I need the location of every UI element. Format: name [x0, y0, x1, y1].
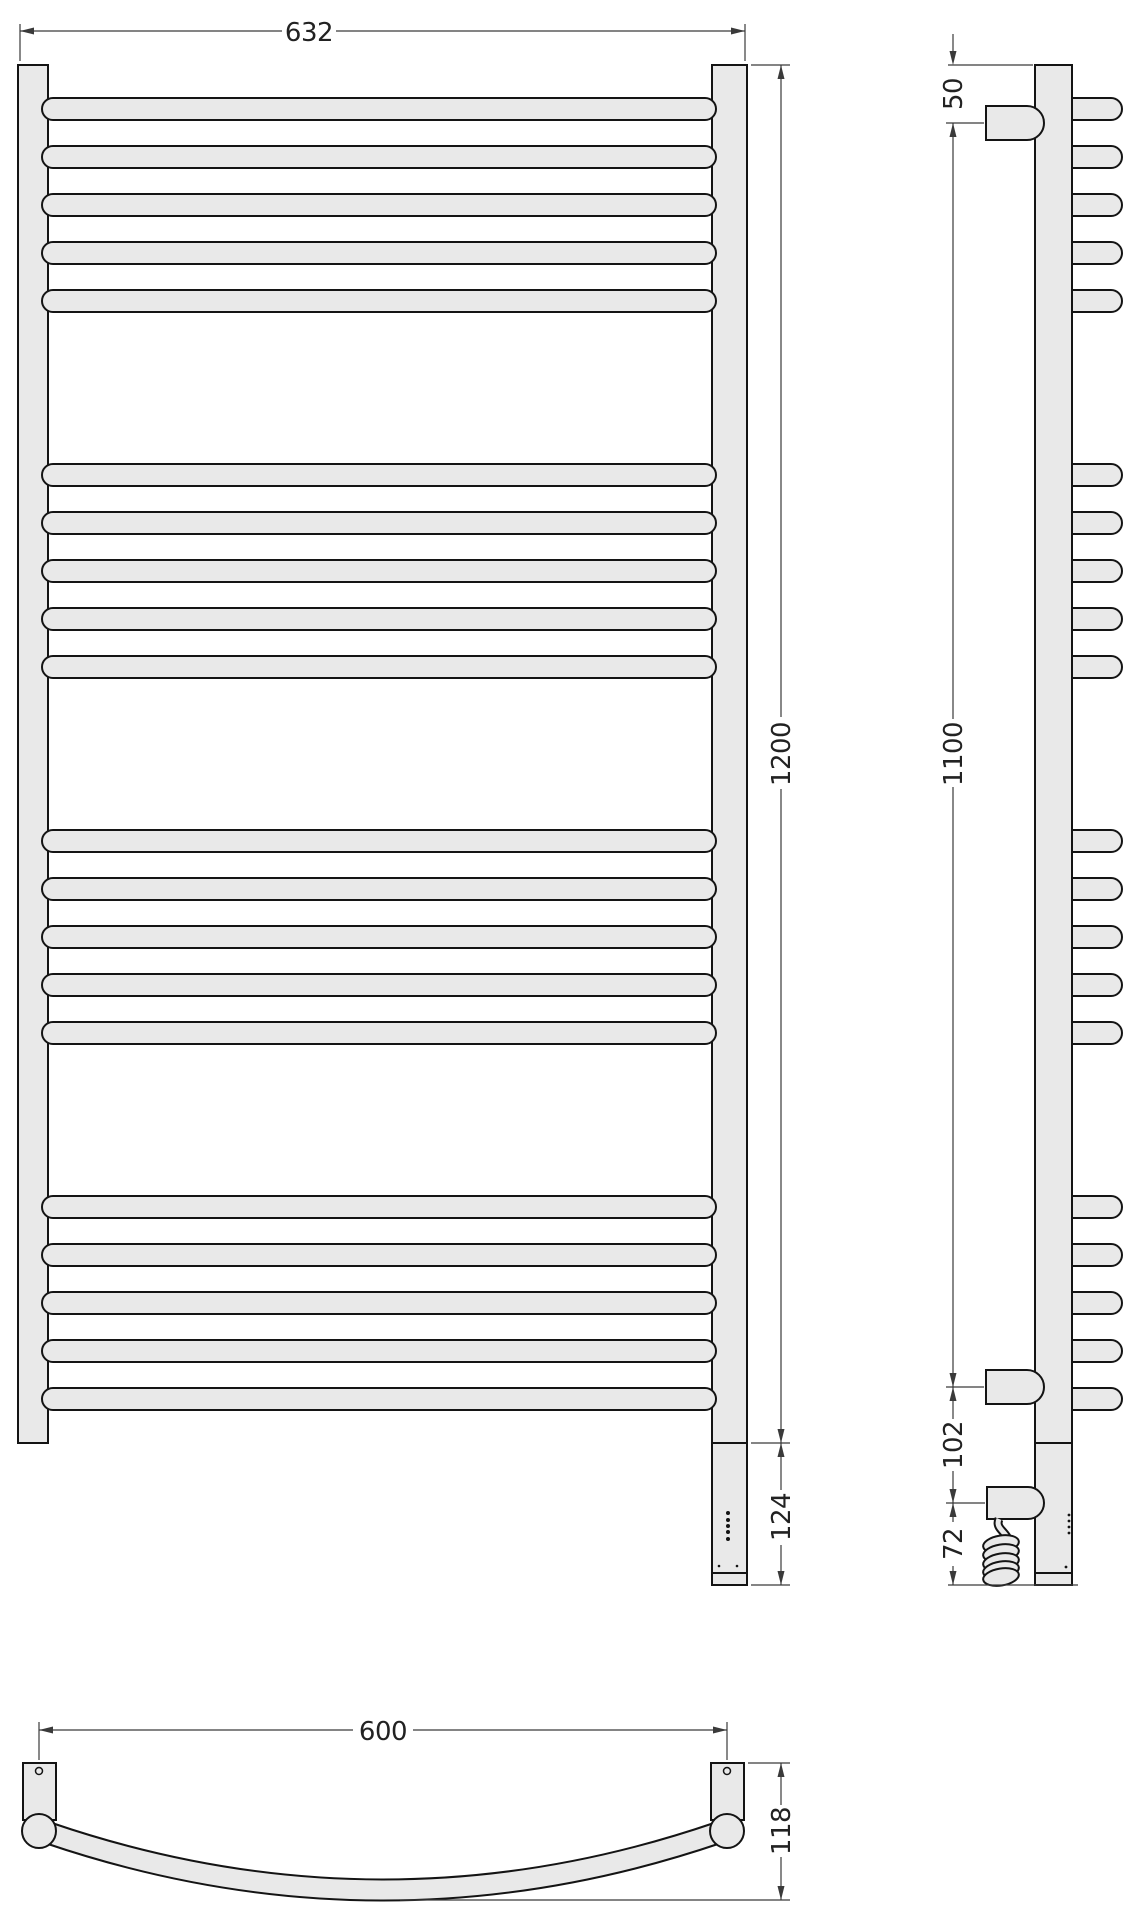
towel-bar	[42, 464, 716, 486]
dim-label-50: 50	[939, 78, 969, 110]
dim-label-1100: 1100	[939, 722, 969, 786]
towel-rail-technical-drawing: 632 1200 124 50	[0, 0, 1142, 1920]
right-post	[710, 1814, 744, 1848]
dim-label-72: 72	[939, 1528, 969, 1560]
towel-bar	[42, 1196, 716, 1218]
towel-bar	[42, 608, 716, 630]
towel-bar	[42, 146, 716, 168]
dim-front-width: 632	[20, 18, 745, 61]
dim-label-1200: 1200	[767, 722, 797, 786]
towel-bar	[42, 1388, 716, 1410]
towel-bar	[42, 1244, 716, 1266]
side-rail	[1035, 65, 1072, 1443]
left-post	[22, 1814, 56, 1848]
dim-label-102: 102	[939, 1421, 969, 1469]
towel-bar	[42, 1340, 716, 1362]
dim-bottom-mount-span: 600	[39, 1717, 727, 1760]
dim-side-block-offset: 102	[939, 1387, 985, 1503]
curved-bar-plan	[45, 1823, 721, 1901]
towel-bar	[42, 242, 716, 264]
right-screw-hole	[724, 1768, 731, 1775]
towel-bar	[42, 290, 716, 312]
dim-side-mount-span: 1100	[939, 123, 984, 1387]
towel-bar	[42, 974, 716, 996]
towel-bar	[42, 1292, 716, 1314]
bottom-view	[22, 1763, 744, 1901]
front-right-rail	[712, 65, 747, 1443]
front-view	[18, 65, 747, 1585]
towel-bar	[42, 98, 716, 120]
dim-label-600: 600	[359, 1717, 407, 1747]
towel-bar	[42, 878, 716, 900]
left-screw-hole	[36, 1768, 43, 1775]
towel-bar	[42, 830, 716, 852]
top-wall-bracket	[986, 106, 1044, 140]
towel-bar	[42, 1022, 716, 1044]
front-left-rail	[18, 65, 48, 1443]
towel-bar	[42, 926, 716, 948]
towel-bar	[42, 560, 716, 582]
drawing-canvas: 632 1200 124 50	[0, 0, 1142, 1920]
dim-label-632: 632	[285, 18, 333, 48]
dim-label-118: 118	[767, 1807, 797, 1855]
bottom-wall-bracket	[986, 1370, 1044, 1404]
side-view	[982, 65, 1122, 1588]
coiled-power-cable	[982, 1519, 1020, 1588]
dim-front-height: 1200	[751, 65, 797, 1443]
towel-bar	[42, 194, 716, 216]
front-bars	[42, 98, 716, 1410]
dim-label-124: 124	[767, 1493, 797, 1541]
dim-element-length: 124	[751, 1443, 797, 1585]
power-connection-block	[987, 1487, 1044, 1519]
towel-bar	[42, 656, 716, 678]
towel-bar	[42, 512, 716, 534]
